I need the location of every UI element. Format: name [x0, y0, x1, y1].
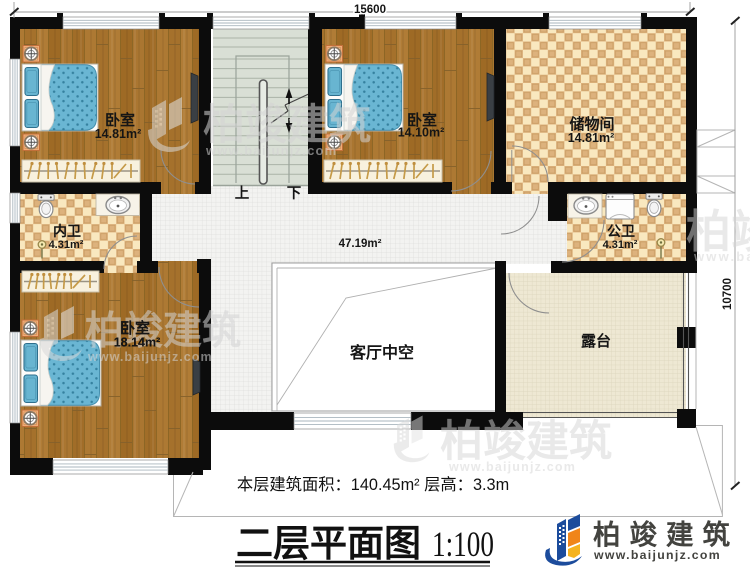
- svg-text:18.14m²: 18.14m²: [114, 336, 161, 350]
- svg-text:公卫: 公卫: [607, 223, 635, 239]
- svg-text:10700: 10700: [722, 278, 734, 310]
- svg-text:二层平面图: 二层平面图: [236, 523, 421, 564]
- svg-text:4.31m²: 4.31m²: [49, 239, 84, 251]
- svg-text:下: 下: [287, 185, 302, 202]
- svg-text:14.81m²: 14.81m²: [95, 127, 142, 141]
- svg-text:柏竣建筑: 柏竣建筑: [593, 519, 739, 550]
- svg-text:内卫: 内卫: [53, 223, 81, 239]
- svg-text:www.baijunjz.com: www.baijunjz.com: [448, 460, 576, 474]
- svg-text:47.19m²: 47.19m²: [339, 238, 382, 250]
- svg-text:www.baijunjz.com: www.baijunjz.com: [87, 350, 213, 364]
- svg-text:www.baijunjz.com: www.baijunjz.com: [205, 143, 337, 158]
- svg-text:www.baijunjz.com: www.baijunjz.com: [593, 548, 721, 562]
- svg-text:露台: 露台: [581, 332, 611, 350]
- svg-text:柏竣建筑: 柏竣建筑: [85, 310, 241, 353]
- svg-text:14.10m²: 14.10m²: [398, 126, 445, 140]
- svg-text:www.baijunjz.com: www.baijunjz.com: [693, 249, 750, 264]
- svg-text:卧室: 卧室: [120, 319, 150, 337]
- svg-text:1:100: 1:100: [432, 524, 494, 564]
- svg-text:15600: 15600: [354, 4, 386, 16]
- svg-text:14.81m²: 14.81m²: [568, 131, 615, 145]
- svg-text:客厅中空: 客厅中空: [350, 343, 414, 362]
- svg-text:柏竣建筑: 柏竣建筑: [203, 101, 371, 148]
- svg-text:4.31m²: 4.31m²: [603, 239, 638, 251]
- svg-text:本层建筑面积：140.45m² 层高：3.3m: 本层建筑面积：140.45m² 层高：3.3m: [237, 476, 509, 494]
- svg-text:柏竣建筑: 柏竣建筑: [440, 418, 612, 466]
- svg-text:上: 上: [235, 185, 250, 202]
